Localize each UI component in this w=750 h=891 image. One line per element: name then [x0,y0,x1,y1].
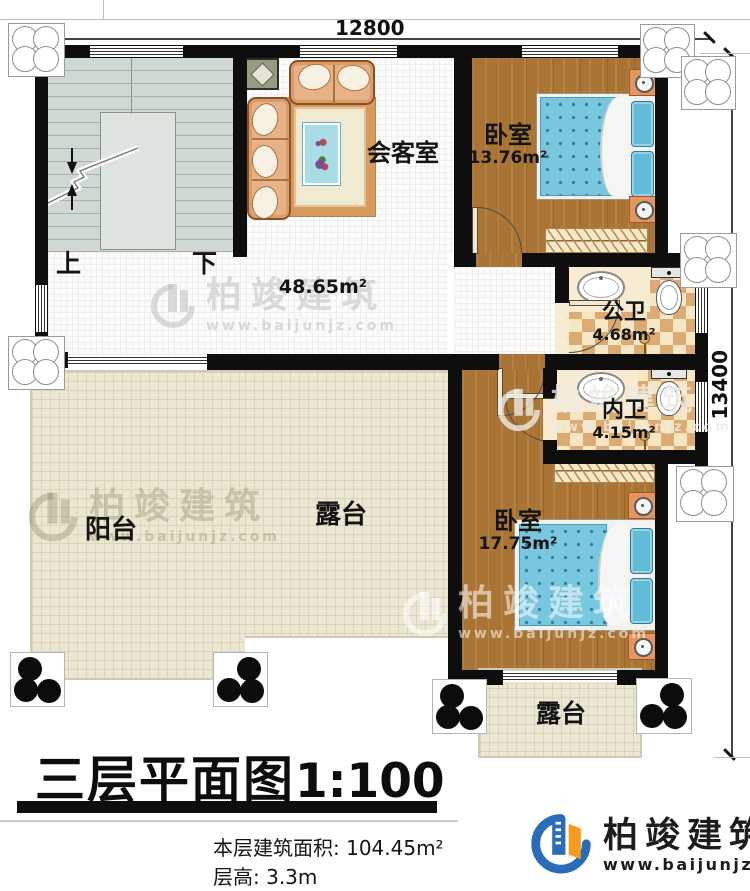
column-symbol [676,466,734,522]
room-label-main-terrace: 露台 [315,501,367,530]
stair-flight-divider [131,58,132,114]
door-threshold [499,354,545,370]
room-label-bedroom2: 卧室 17.75m² [468,508,568,554]
corridor-floor [454,267,555,356]
logo-brand-url: www.baijunjz.com [603,855,750,874]
door-threshold [476,253,522,267]
bed-duvet [600,97,630,196]
column-symbol [8,336,65,390]
window [300,46,397,57]
wall [555,253,569,303]
plant-stand-top [250,62,274,86]
room-name: 卧室 [458,122,558,149]
title-underline [17,801,437,813]
nightstand [629,196,657,223]
brand-logo: 柏竣建筑 www.baijunjz.com [528,810,750,882]
lamp-icon [634,497,653,516]
room-name: 内卫 [578,399,670,424]
right-dimension-label: 13400 [708,350,732,420]
hall-area-label: 48.65m² [268,277,378,298]
wall [545,354,708,370]
wall [448,354,462,685]
wall [655,45,668,267]
main-terrace-floor [30,370,245,680]
wall [454,253,476,267]
room-label-bedroom1: 卧室 13.76m² [458,122,558,168]
wall [543,440,557,464]
column-symbol [636,678,692,734]
door-threshold [555,303,569,354]
coffee-table [303,123,340,185]
lamp-icon [634,638,653,657]
dimension-tick [723,748,736,761]
stair-direction-arrows [40,140,190,230]
construction-line [103,0,104,19]
hall-floor [48,252,448,356]
door-leaf [497,368,503,416]
column-symbol [681,56,736,110]
top-dimension-label: 12800 [335,16,405,40]
floor-height-text: 层高: 3.3m [213,861,317,890]
nightstand [628,492,656,519]
room-area: 17.75m² [468,535,568,554]
logo-brand-name: 柏竣建筑 [603,818,750,855]
room-label-public-bath: 公卫 4.68m² [578,301,670,344]
room-label-reception: 会客室 [355,140,451,167]
nightstand [628,633,656,660]
bed-pillow [631,151,654,197]
window [696,382,707,432]
room-label-small-terrace: 露台 [536,700,586,728]
bed-pillow [631,101,654,147]
wall [543,368,557,398]
wall [233,45,247,257]
wall [543,450,708,464]
window [36,285,47,332]
window [90,46,183,57]
lamp-icon [635,201,654,220]
plant-stand [245,58,279,90]
extension-line [714,757,750,758]
room-name: 公卫 [578,301,670,326]
room-label-balcony: 阳台 [85,516,137,545]
window [522,46,618,57]
divider-rule [0,820,458,822]
column-symbol [432,679,487,734]
floor-plan-canvas: 12800 13400 [0,0,750,891]
wardrobe [545,228,648,253]
sliding-door [503,671,617,682]
wall [655,458,668,685]
bed-duvet [598,524,628,626]
room-area: 13.76m² [458,149,558,168]
column-symbol [680,233,737,288]
stairs-up-label: 上 [56,250,81,278]
door-leaf [472,207,478,254]
balcony-railing [68,355,207,366]
bed-pillow [630,578,653,624]
bed-pillow [630,528,653,574]
window [696,283,707,333]
room-name: 卧室 [468,508,568,535]
extension-line [700,53,750,54]
column-symbol [10,652,65,707]
logo-building-icon [528,810,594,882]
floor-area-text: 本层建筑面积: 104.45m² [213,832,444,861]
room-area: 4.68m² [578,326,670,344]
stairs-down-label: 下 [192,250,217,278]
room-area: 4.15m² [578,424,670,442]
column-symbol [8,23,65,77]
room-label-inner-bath: 内卫 4.15m² [578,399,670,442]
column-symbol [213,652,268,707]
